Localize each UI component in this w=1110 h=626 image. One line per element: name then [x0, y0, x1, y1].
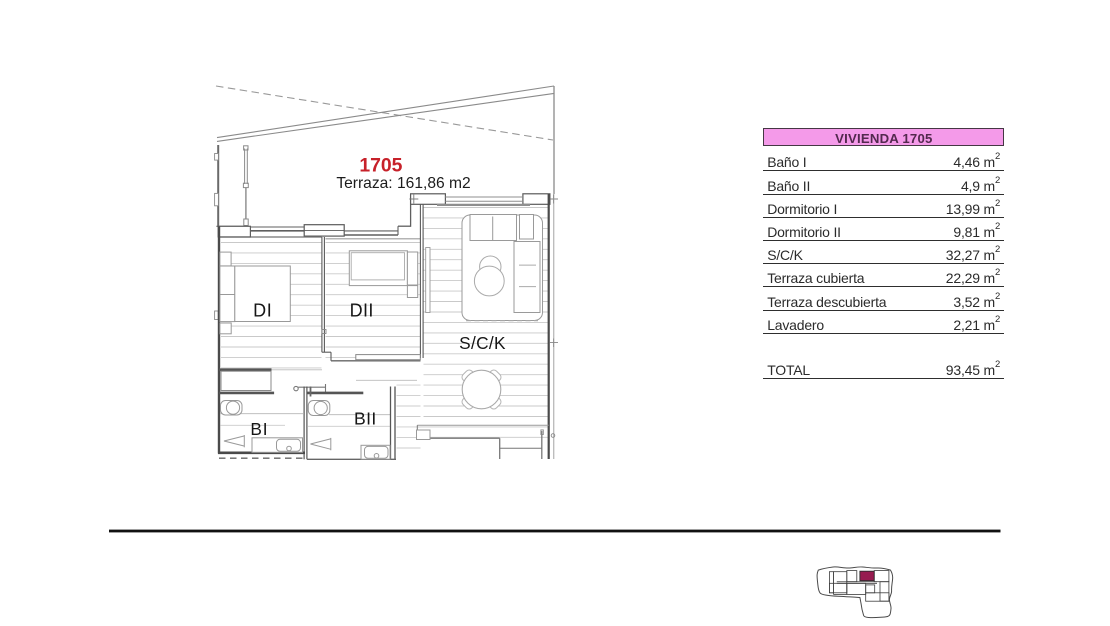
svg-text:S/C/K: S/C/K [459, 333, 506, 353]
svg-text:DII: DII [350, 300, 374, 320]
svg-text:BI: BI [250, 419, 268, 439]
svg-text:DI: DI [253, 300, 272, 320]
svg-text:Terraza: 161,86 m2: Terraza: 161,86 m2 [336, 175, 470, 192]
svg-text:BII: BII [354, 409, 377, 429]
svg-text:1705: 1705 [359, 155, 402, 177]
